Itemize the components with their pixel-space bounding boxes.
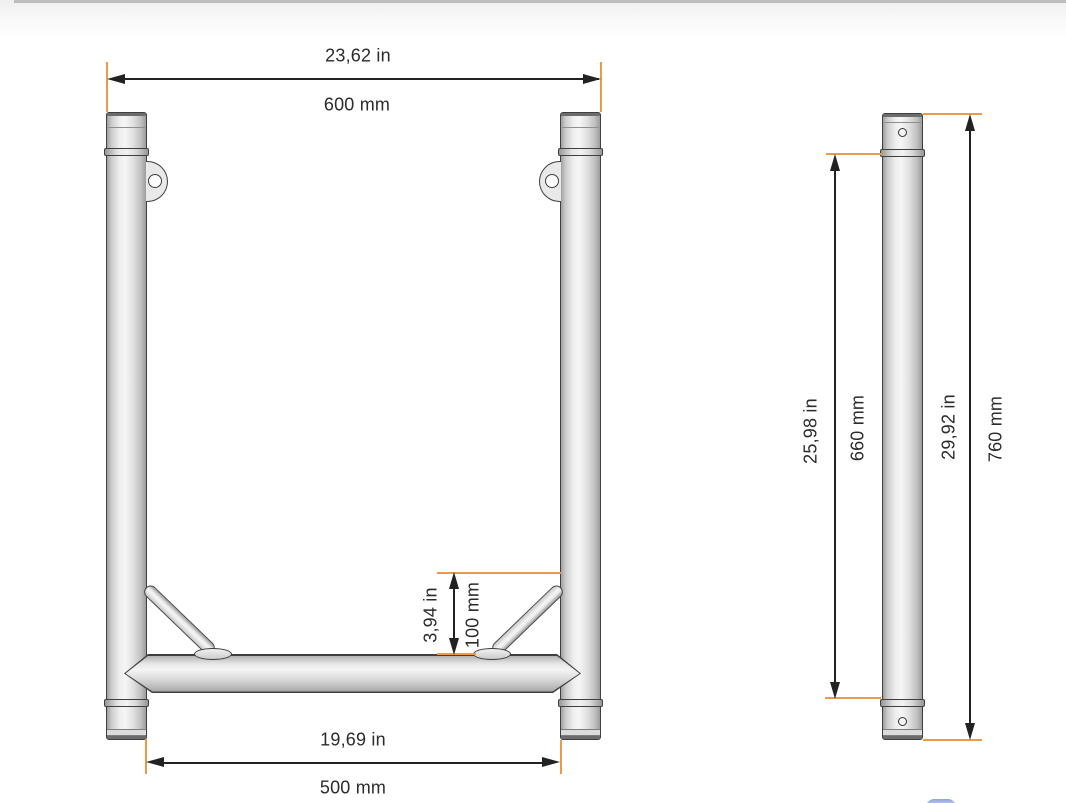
dimension-line bbox=[453, 583, 456, 644]
front-left-tube bbox=[106, 112, 147, 740]
tube-bottom-cap bbox=[883, 736, 922, 739]
side-tube bbox=[882, 113, 923, 740]
arrowhead-right bbox=[583, 74, 601, 84]
tube-collar-ring bbox=[880, 149, 925, 157]
extension-line bbox=[106, 62, 108, 112]
left-brace-weld-foot bbox=[194, 648, 232, 660]
tube-top-cap bbox=[107, 113, 146, 116]
arrowhead-left bbox=[107, 74, 125, 84]
arrowhead-left bbox=[146, 757, 164, 767]
partial-widget-button[interactable] bbox=[926, 799, 956, 803]
tube-top-cap bbox=[561, 113, 600, 116]
arrowhead-down bbox=[449, 638, 459, 655]
arrowhead-up bbox=[449, 572, 459, 589]
dim-inner-width-imperial: 19,69 in bbox=[320, 730, 386, 751]
page-top-gradient bbox=[0, 0, 1066, 40]
tube-seam-line bbox=[884, 122, 921, 123]
dim-brace-height-metric: 100 mm bbox=[463, 582, 484, 648]
bottom-chord-tube bbox=[124, 654, 581, 693]
dim-overall-height-metric: 760 mm bbox=[986, 396, 1007, 462]
dim-overall-width-imperial: 23,62 in bbox=[325, 46, 391, 67]
technical-drawing-canvas: 23,62 in 600 mm 19,69 in 500 mm 3,94 in … bbox=[0, 0, 1066, 803]
window-top-edge bbox=[14, 0, 1066, 3]
dim-leg-height-metric: 660 mm bbox=[848, 395, 869, 461]
tube-collar-ring bbox=[558, 148, 603, 156]
tube-top-cap bbox=[883, 114, 922, 117]
tube-seam-line bbox=[108, 127, 145, 128]
tube-groove bbox=[883, 729, 922, 736]
dimension-line bbox=[969, 127, 972, 726]
tube-collar-ring bbox=[104, 148, 149, 156]
dim-inner-width-metric: 500 mm bbox=[320, 778, 386, 799]
arrowhead-down bbox=[830, 682, 840, 699]
arrowhead-up bbox=[830, 154, 840, 171]
arrowhead-down bbox=[965, 723, 975, 740]
right-brace-weld-foot bbox=[473, 648, 511, 660]
right-diagonal-brace bbox=[490, 582, 566, 656]
dimension-line bbox=[161, 762, 545, 765]
dim-brace-height-imperial: 3,94 in bbox=[421, 587, 442, 642]
spigot-pin-hole-top bbox=[898, 128, 907, 137]
dim-leg-height-imperial: 25,98 in bbox=[801, 398, 822, 464]
tube-collar-ring bbox=[558, 699, 603, 707]
dimension-line bbox=[834, 167, 837, 685]
tube-bottom-cap bbox=[561, 736, 600, 739]
tube-groove bbox=[561, 729, 600, 736]
dim-overall-width-metric: 600 mm bbox=[324, 95, 390, 116]
tube-groove bbox=[107, 729, 146, 736]
dimension-line bbox=[122, 78, 599, 81]
spigot-pin-hole-bottom bbox=[898, 717, 907, 726]
arrowhead-up bbox=[965, 114, 975, 131]
tube-seam-line bbox=[562, 127, 599, 128]
left-diagonal-brace bbox=[141, 582, 217, 656]
bottom-chord-surface bbox=[126, 656, 580, 692]
right-clamp-ear-hole bbox=[545, 174, 559, 188]
tube-collar-ring bbox=[104, 699, 149, 707]
left-clamp-ear-hole bbox=[148, 174, 162, 188]
dim-overall-height-imperial: 29,92 in bbox=[939, 394, 960, 460]
tube-bottom-cap bbox=[107, 736, 146, 739]
extension-line bbox=[600, 62, 602, 112]
tube-collar-ring bbox=[880, 699, 925, 707]
arrowhead-right bbox=[542, 757, 560, 767]
front-right-tube bbox=[560, 112, 601, 740]
